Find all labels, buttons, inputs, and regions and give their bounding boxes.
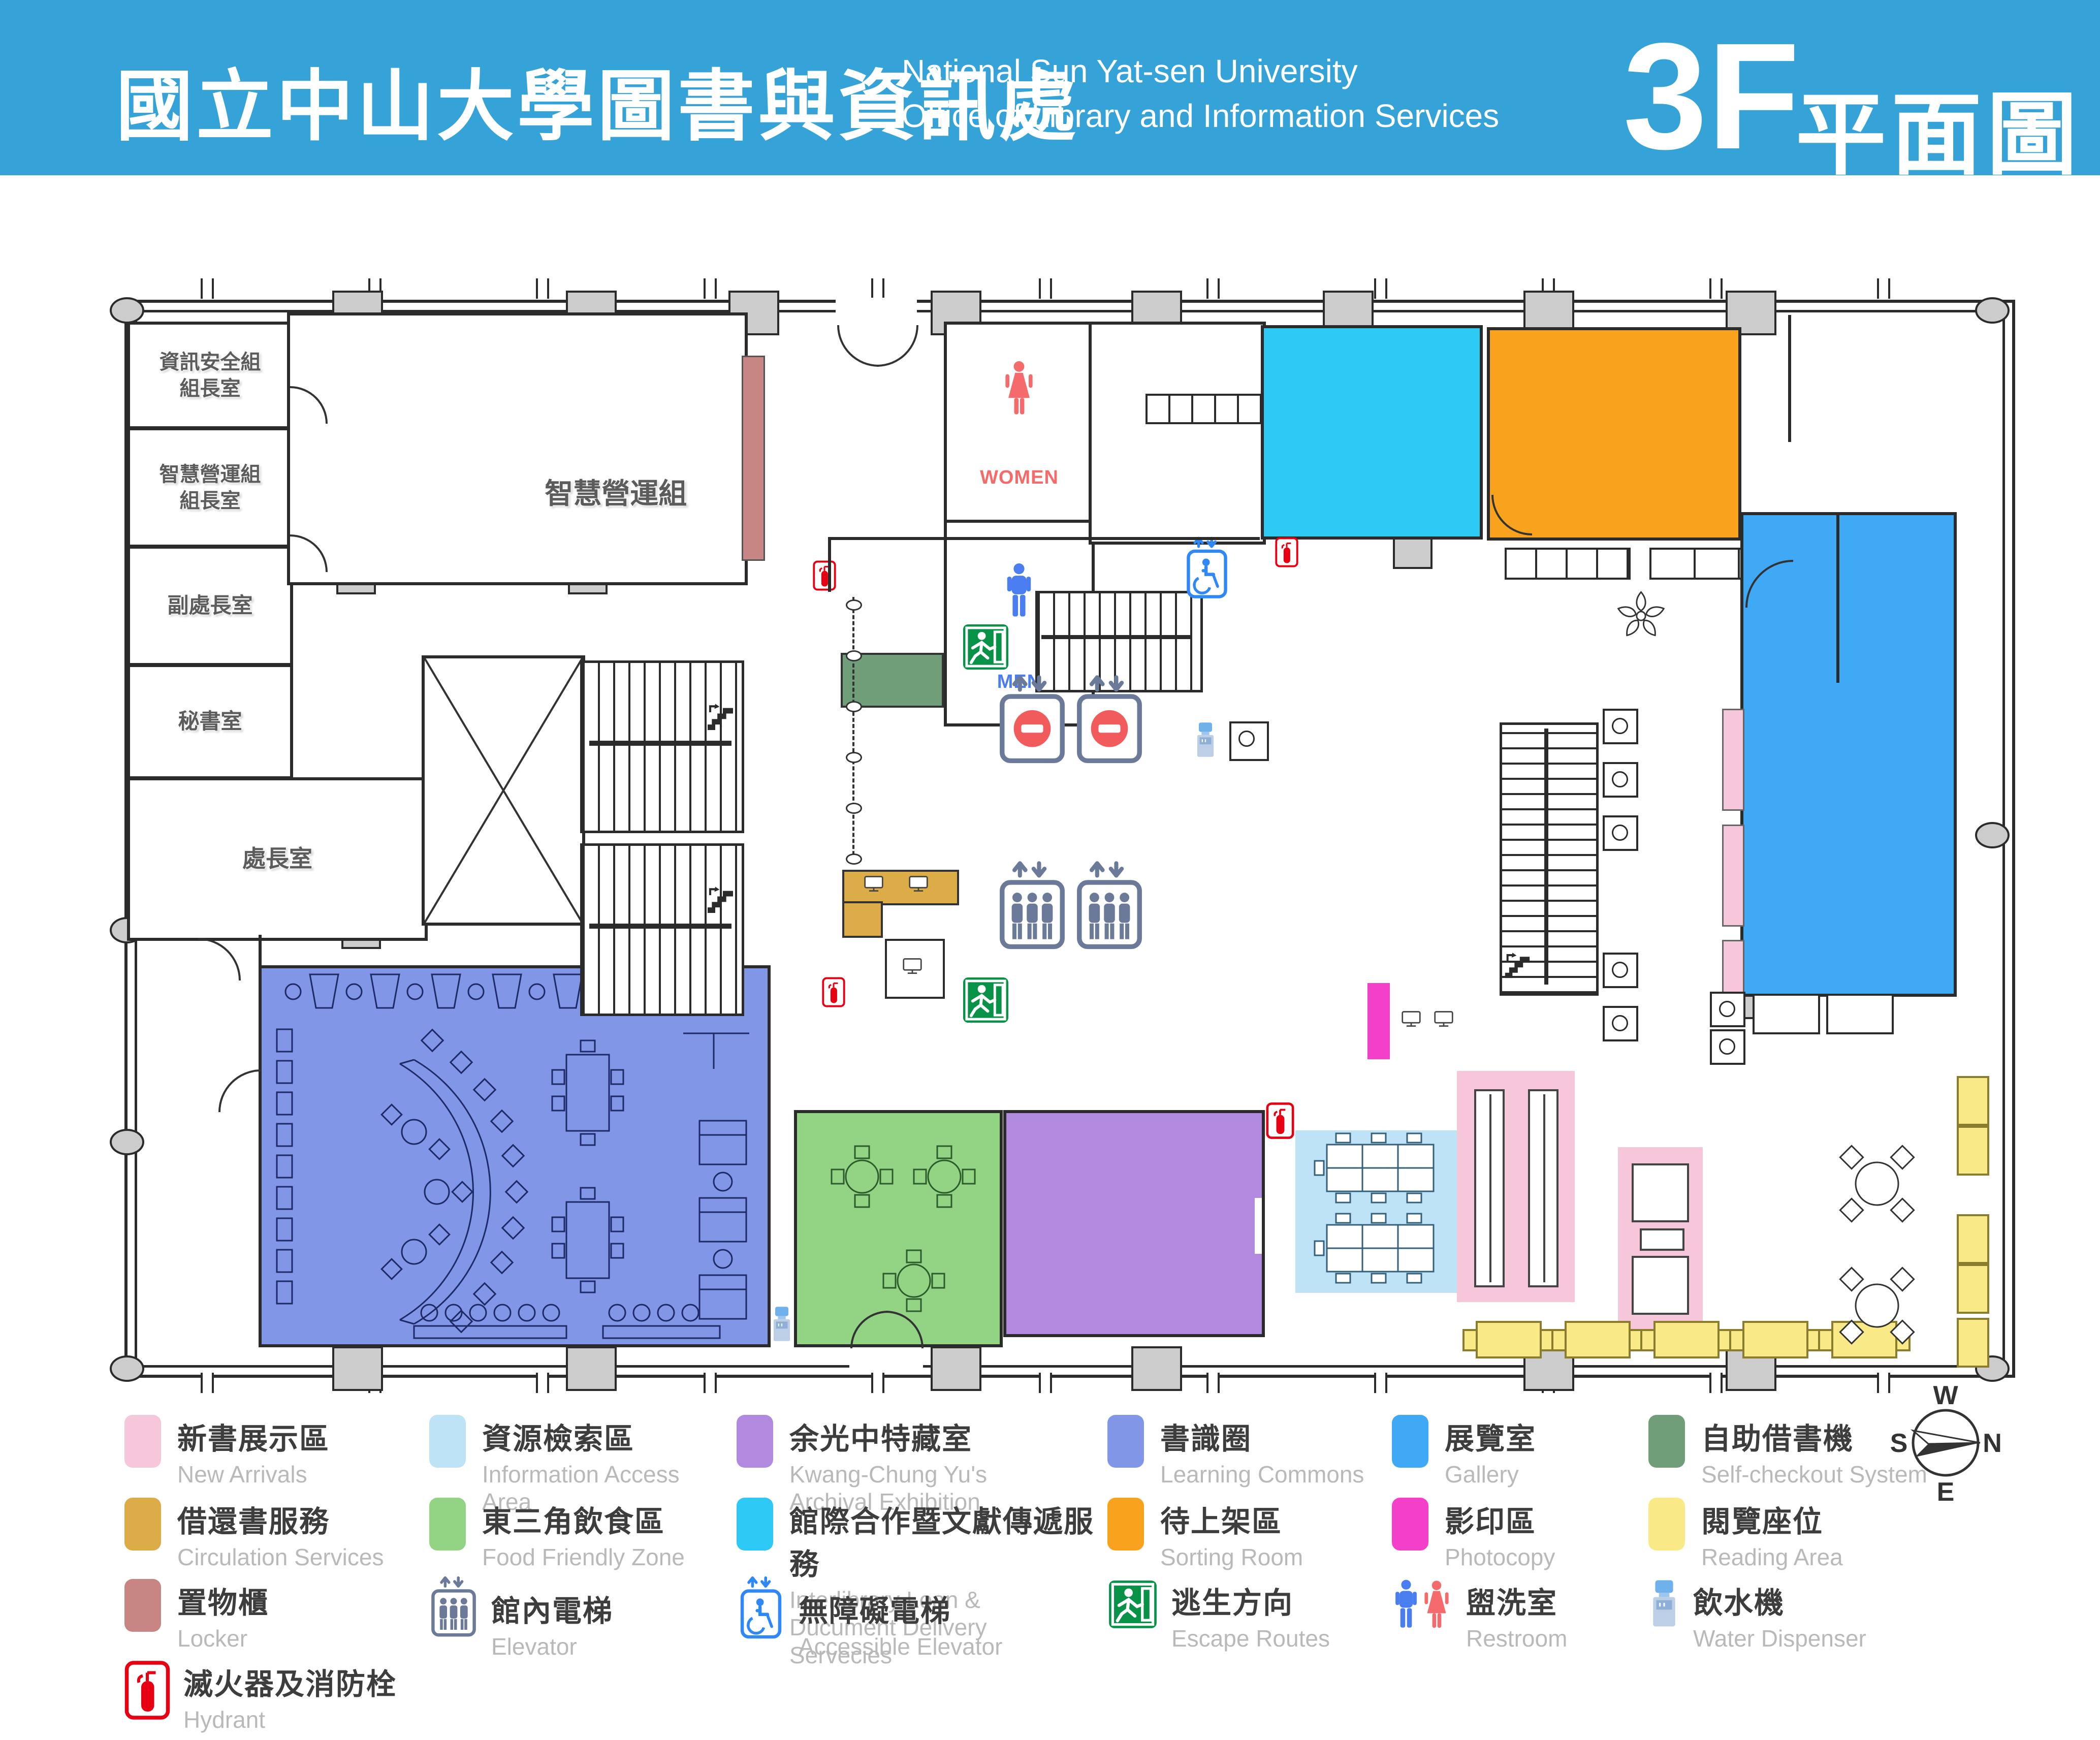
column [110,1355,144,1382]
escape-exit-icon [1107,1579,1158,1630]
reading-seat [1957,1126,1989,1176]
elevator-icon [1074,858,1145,951]
partition-post [846,853,862,865]
escape-exit-icon [962,976,1010,1024]
bench [1753,994,1820,1034]
door-gap [1255,1198,1262,1254]
elevator-no-entry-icon [997,672,1068,765]
legend-zh: 影印區 [1445,1498,1555,1540]
reading-seat [1957,1214,1989,1264]
legend-zh: 借還書服務 [177,1498,384,1540]
area-kwang-chung-yu-exhibition [1003,1110,1265,1337]
area-interlibrary-loan [1261,325,1483,540]
legend-item-photocopy: 影印區Photocopy [1392,1498,1636,1571]
legend-zh: 東三角飲食區 [482,1498,685,1540]
partition-post [846,599,862,611]
entrance-gap [836,298,917,318]
legend-swatch [737,1415,773,1468]
info-access-tables [1295,1130,1466,1293]
legend-en: Water Dispenser [1693,1625,1866,1652]
woman-icon [1000,360,1038,420]
flower-seating-icon [1609,584,1673,648]
column [110,297,144,324]
legend-zh: 館內電梯 [491,1587,613,1630]
area-locker [742,356,765,561]
stairs-icon [705,702,736,733]
reading-table [1653,1321,1720,1358]
room-label: 副處長室 [167,592,252,620]
women-label: WOMEN [980,467,1059,489]
legend-item-accessible-elevator: 無障礙電梯Accessible Elevator [737,1574,1092,1660]
book-cart [1603,709,1638,744]
area-new-arrivals [1457,1071,1575,1302]
shelf [1505,548,1631,580]
legend-en: Food Friendly Zone [482,1543,685,1571]
header-bar: 國立中山大學圖書與資訊處 National Sun Yat-sen Univer… [0,0,2100,175]
water-dispenser-icon [770,1306,793,1342]
legend-swatch [124,1579,161,1632]
page-subtitle: National Sun Yat-sen University Office o… [902,49,1499,139]
legend-swatch [124,1498,161,1551]
room-smart-operations: 智慧營運組 [287,312,748,585]
legend-item-water-dispenser: 飲水機Water Dispenser [1648,1579,1974,1652]
legend-zh: 置物櫃 [177,1579,269,1622]
book-cart [1603,815,1638,851]
fire-extinguisher-icon [124,1660,170,1720]
display-table [1632,1256,1689,1315]
stair-rail [1544,729,1548,985]
legend-swatch [1392,1498,1428,1551]
reading-seat [1957,1318,1989,1368]
legend-en: Learning Commons [1160,1461,1364,1488]
legend-en: Locker [177,1625,269,1652]
monitor-icon [864,875,884,893]
bench [1826,994,1894,1034]
legend-item-gallery: 展覽室Gallery [1392,1415,1636,1488]
legend-swatch [1107,1415,1144,1468]
area-new-arrivals-strip [1722,940,1744,996]
legend-item-circulation: 借還書服務Circulation Services [124,1498,409,1571]
compass-e: E [1937,1477,1955,1507]
wall [828,537,831,592]
entrance-gap [849,1349,923,1370]
display-table [1632,1163,1689,1222]
legend-zh: 書識圈 [1160,1415,1364,1458]
learning-commons-furniture [262,968,768,1344]
elevator-icon [997,858,1068,951]
partition-post [846,701,862,712]
stairs-icon [705,885,736,915]
book-cart [1603,953,1638,988]
fire-extinguisher-icon [813,560,836,591]
stair-rail [589,924,731,929]
elevator-icon [429,1574,478,1638]
stair-rail [1041,635,1192,639]
legend-zh: 盥洗室 [1466,1579,1567,1622]
restroom-icon [1392,1579,1453,1634]
legend-en: Elevator [491,1633,613,1660]
water-dispenser-icon [1648,1579,1680,1628]
legend-zh: 滅火器及消防栓 [183,1660,397,1703]
subtitle-line2: Office of Library and Information Servic… [902,93,1499,138]
legend-en: Hydrant [183,1706,397,1733]
escape-exit-icon [962,623,1010,671]
room-smart-ops-chief: 智慧營運組 組長室 [127,427,293,548]
legend-zh: 飲水機 [1693,1579,1866,1622]
area-new-arrivals [1618,1147,1703,1341]
stairs [580,843,744,1016]
legend-swatch [429,1415,466,1468]
water-dispenser-icon [1194,721,1217,758]
fire-extinguisher-icon [1266,1098,1294,1143]
monitor-icon [908,875,929,893]
area-new-arrivals-strip [1722,709,1744,811]
reading-table [1565,1321,1631,1358]
column [931,1346,981,1391]
area-learning-commons [259,965,771,1347]
area-circulation-desk [842,870,959,905]
partition-post [846,752,862,763]
partition-post [846,650,862,661]
legend-swatch [124,1415,161,1468]
legend-swatch [737,1498,773,1551]
legend-en: Photocopy [1445,1543,1555,1571]
legend-zh: 資源檢索區 [482,1415,721,1458]
room-secretary: 秘書室 [127,664,293,779]
legend-en: Gallery [1445,1461,1536,1488]
monitor-icon [1401,1010,1421,1028]
book-shelf [1474,1089,1505,1287]
room-utility [1089,322,1266,545]
room-restroom-women: WOMEN [944,322,1095,526]
shelf [1649,548,1742,580]
wall [1836,515,1839,683]
legend-item-food-friendly: 東三角飲食區Food Friendly Zone [429,1498,721,1571]
woman-icon [1420,1579,1453,1634]
column [332,1346,383,1391]
legend-item-hydrant: 滅火器及消防栓Hydrant [124,1660,531,1733]
legend-en: Accessible Elevator [799,1633,1002,1660]
legend-swatch [1107,1498,1144,1551]
accessible-elevator-icon [1183,534,1231,599]
legend-en: Restroom [1466,1625,1567,1652]
legend-item-elevator: 館內電梯Elevator [429,1574,721,1660]
partition-line [852,597,854,861]
book-shelf [1528,1089,1558,1287]
chair [1710,992,1745,1027]
legend-zh: 逃生方向 [1171,1579,1330,1622]
room-label: 處長室 [242,844,312,874]
legend-swatch [429,1498,466,1551]
legend-swatch [1648,1498,1685,1551]
legend-zh: 閱覽座位 [1701,1498,1843,1540]
reading-seat [1957,1076,1989,1126]
floorplan-poster: 國立中山大學圖書與資訊處 National Sun Yat-sen Univer… [0,0,2100,1740]
reading-table [1476,1321,1542,1358]
legend-en: New Arrivals [177,1461,330,1488]
area-new-arrivals-strip [1722,825,1744,927]
area-food-friendly-zone [794,1110,1003,1347]
shaft-room [422,655,585,926]
shaft-box [1229,721,1269,761]
legend-zh: 余光中特藏室 [789,1415,1054,1458]
legend-zh: 新書展示區 [177,1415,330,1458]
fire-extinguisher-icon [1275,536,1298,568]
legend-zh: 館際合作暨文獻傳遞服務 [789,1498,1094,1583]
legend-item-escape-routes: 逃生方向Escape Routes [1107,1579,1382,1652]
area-photocopy [1367,983,1390,1059]
subtitle-line1: National Sun Yat-sen University [902,49,1499,93]
legend-swatch [1392,1415,1428,1468]
room-info-security-chief: 資訊安全組 組長室 [127,322,293,429]
reading-seat [1957,1264,1989,1314]
room-label: 智慧營運組 [545,476,687,513]
stairs [580,660,744,833]
stair-rail [589,741,731,746]
column [1975,297,2010,324]
area-information-access [1295,1130,1466,1293]
legend-en: Circulation Services [177,1543,384,1571]
legend-en: Reading Area [1701,1543,1843,1571]
column [110,1129,144,1155]
room-label: 資訊安全組 組長室 [160,349,261,402]
column [566,1346,617,1391]
monitor-icon [1434,1010,1454,1028]
monitor-icon [902,957,922,975]
chair [1710,1029,1745,1065]
area-circulation-desk [842,901,883,938]
legend-zh: 待上架區 [1160,1498,1303,1540]
book-cart [1603,762,1638,798]
compass-w: W [1933,1381,1958,1410]
legend-en: Sorting Room [1160,1543,1303,1571]
wall [1788,315,1791,442]
legend-swatch [1648,1415,1685,1468]
legend-item-learning-commons: 書識圈Learning Commons [1107,1415,1382,1488]
wall [828,537,1260,540]
accessible-elevator-icon [737,1574,785,1640]
book-cart [1603,1006,1638,1041]
floor-number: 3F [1623,9,1800,183]
shelf [1146,394,1264,424]
elevator-no-entry-icon [1074,672,1145,765]
compass-rose: W N S E [1874,1378,2017,1520]
column [1975,822,2010,848]
compass-s: S [1890,1429,1908,1458]
reading-table [1742,1321,1808,1358]
legend-item-restroom: 盥洗室Restroom [1392,1579,1636,1652]
legend-item-new-arrivals: 新書展示區New Arrivals [124,1415,409,1488]
partition-post [846,803,862,814]
food-zone-tables [797,1113,1000,1344]
legend-item-locker: 置物櫃Locker [124,1579,409,1652]
display-table [1640,1228,1684,1251]
legend-zh: 無障礙電梯 [799,1587,1002,1630]
compass-n: N [1983,1429,2002,1458]
legend-en: Escape Routes [1171,1625,1330,1652]
round-tables [1824,1133,1930,1362]
room-deputy-director: 副處長室 [127,546,293,666]
legend-zh: 展覽室 [1445,1415,1536,1458]
floor-plan-label: 平面圖 [1796,62,2082,193]
stairs-icon [1503,951,1532,980]
legend-item-sorting-room: 待上架區Sorting Room [1107,1498,1382,1571]
x-brace [425,658,582,923]
man-icon [1003,562,1035,623]
room-label: 智慧營運組 組長室 [160,461,261,514]
room-label: 秘書室 [178,708,242,736]
man-icon [1392,1579,1420,1634]
fire-extinguisher-icon [822,976,845,1008]
room-director: 處長室 [127,777,428,941]
wall [259,935,262,968]
column [1131,1346,1182,1391]
